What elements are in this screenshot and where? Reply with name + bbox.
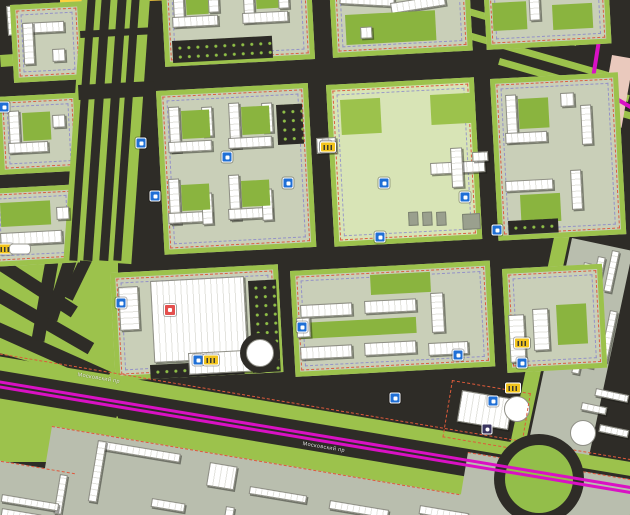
map-marker-blue[interactable] bbox=[0, 102, 10, 113]
map-marker-blue[interactable] bbox=[460, 192, 471, 203]
map-marker-blue[interactable] bbox=[116, 298, 127, 309]
map-marker-blue[interactable] bbox=[517, 358, 528, 369]
map-marker-blue[interactable] bbox=[136, 138, 147, 149]
map-marker-pill[interactable] bbox=[9, 244, 31, 255]
map-marker-blue[interactable] bbox=[283, 178, 294, 189]
map-marker-yellow[interactable] bbox=[505, 383, 521, 394]
map-marker-blue[interactable] bbox=[375, 232, 386, 243]
map-marker-blue[interactable] bbox=[453, 350, 464, 361]
map-marker-red[interactable] bbox=[164, 304, 176, 316]
map-marker-blue[interactable] bbox=[222, 152, 233, 163]
map-marker-blue[interactable] bbox=[390, 393, 401, 404]
map-marker-blue[interactable] bbox=[488, 396, 499, 407]
map-marker-yellow[interactable] bbox=[320, 142, 336, 153]
map-canvas[interactable]: Московский прМосковский пр bbox=[0, 0, 630, 515]
map-marker-yellow[interactable] bbox=[514, 338, 530, 349]
map-marker-blue[interactable] bbox=[297, 322, 308, 333]
map-marker-dark[interactable] bbox=[482, 424, 493, 435]
map-marker-blue[interactable] bbox=[379, 178, 390, 189]
map-marker-blue[interactable] bbox=[492, 225, 503, 236]
map-marker-blue[interactable] bbox=[193, 355, 204, 366]
map-marker-blue[interactable] bbox=[150, 191, 161, 202]
map-marker-yellow[interactable] bbox=[203, 355, 219, 366]
map-layer-markers bbox=[0, 0, 630, 515]
